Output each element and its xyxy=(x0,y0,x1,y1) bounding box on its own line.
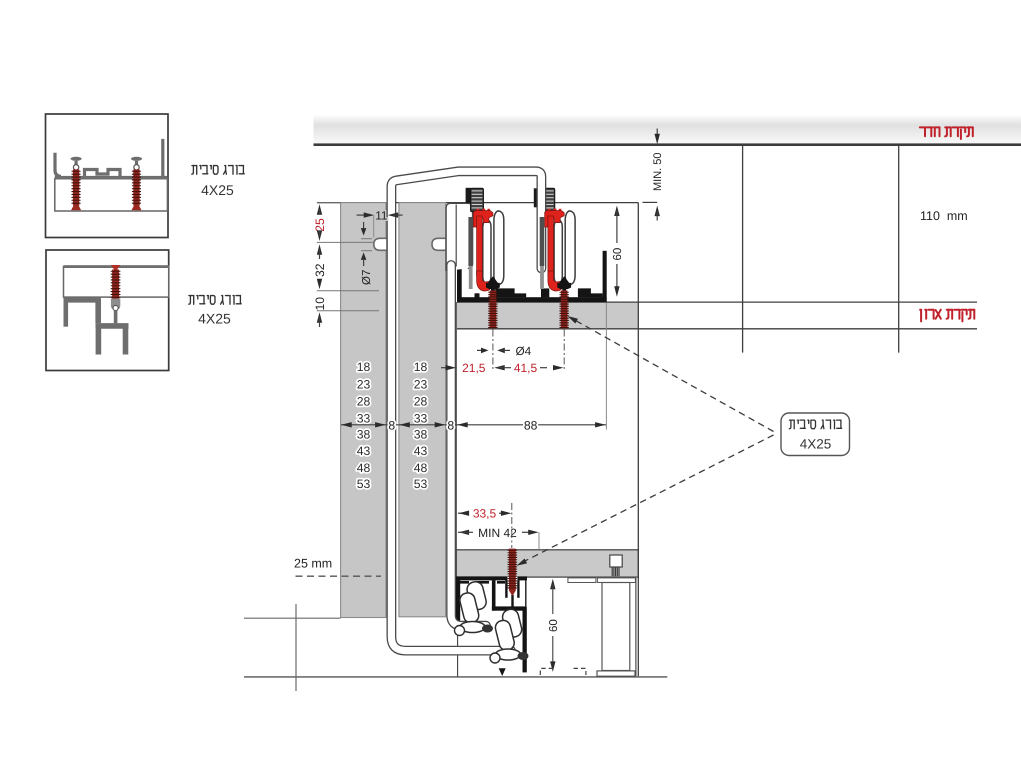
svg-text:43: 43 xyxy=(357,444,371,458)
svg-text:88: 88 xyxy=(524,418,538,432)
svg-text:23: 23 xyxy=(414,378,428,392)
svg-text:MIN. 50: MIN. 50 xyxy=(652,152,664,191)
svg-text:4X25: 4X25 xyxy=(800,437,832,452)
svg-text:33,5: 33,5 xyxy=(473,507,497,521)
svg-text:38: 38 xyxy=(414,427,428,441)
svg-text:38: 38 xyxy=(357,427,371,441)
svg-text:60: 60 xyxy=(612,248,624,261)
svg-text:33: 33 xyxy=(414,411,428,425)
svg-text:Ø4: Ø4 xyxy=(516,344,532,358)
svg-text:41,5: 41,5 xyxy=(514,361,538,375)
svg-text:43: 43 xyxy=(414,444,428,458)
svg-text:25 mm: 25 mm xyxy=(294,557,332,571)
svg-text:28: 28 xyxy=(414,394,428,408)
svg-text:32: 32 xyxy=(313,263,327,277)
svg-text:28: 28 xyxy=(357,394,371,408)
svg-text:60: 60 xyxy=(548,619,560,632)
svg-text:8: 8 xyxy=(447,418,454,432)
svg-text:23: 23 xyxy=(357,378,371,392)
svg-text:Ø7: Ø7 xyxy=(361,270,373,285)
svg-text:33: 33 xyxy=(357,411,371,425)
svg-text:18: 18 xyxy=(414,360,428,374)
svg-text:48: 48 xyxy=(357,461,371,475)
svg-text:53: 53 xyxy=(357,477,371,491)
svg-text:21,5: 21,5 xyxy=(462,361,486,375)
svg-text:4X25: 4X25 xyxy=(198,311,231,327)
svg-text:48: 48 xyxy=(414,461,428,475)
svg-text:25: 25 xyxy=(313,218,327,232)
svg-text:53: 53 xyxy=(414,477,428,491)
svg-text:8: 8 xyxy=(388,418,395,432)
svg-text:18: 18 xyxy=(357,360,371,374)
svg-text:110 mm: 110 mm xyxy=(920,209,968,223)
svg-text:11: 11 xyxy=(375,209,387,223)
svg-text:10: 10 xyxy=(313,297,327,311)
svg-text:4X25: 4X25 xyxy=(201,182,234,198)
